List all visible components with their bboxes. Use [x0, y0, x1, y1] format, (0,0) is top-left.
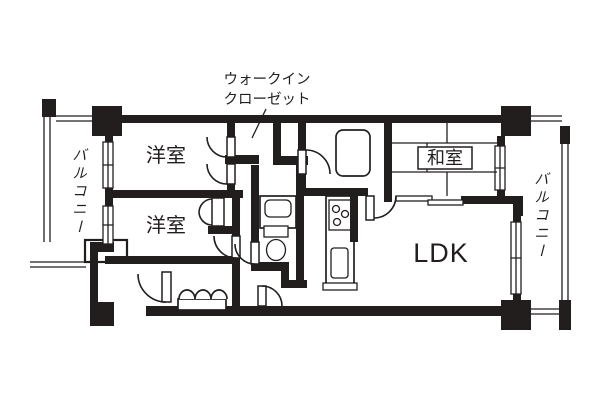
stove-burner-1: [333, 206, 340, 213]
balcony-right-railing: [562, 128, 568, 330]
wall-bath-left-top: [298, 123, 306, 150]
stove-burner-3: [334, 219, 341, 226]
door-room1: [207, 164, 235, 184]
wall-right-4: [513, 294, 521, 302]
balcony-right-railing-cap-top: [560, 126, 570, 144]
pillar-top-right: [501, 106, 531, 136]
balcony-left-top-tie: [56, 116, 92, 121]
wall-hall-1: [227, 123, 235, 137]
wall-left-4: [90, 250, 98, 304]
washroom: [260, 196, 296, 261]
floor-plan-page: 洋室 洋室 和室 LDK ウォークイン クローゼット バルコニー バルコニー: [0, 0, 600, 400]
label-ldk: LDK: [413, 238, 469, 268]
door-toilet: [258, 286, 282, 306]
wall-right-1: [497, 136, 505, 146]
neighbor-railing: [30, 262, 86, 267]
balcony-left-railing: [44, 104, 50, 242]
bathtub: [336, 130, 370, 176]
window-room1-left: [103, 142, 113, 188]
wall-room2-bottom: [105, 256, 232, 264]
door-room2-closet-bifold: [199, 198, 224, 226]
washbasin-bowl: [265, 200, 291, 217]
label-room-japanese: 和室: [427, 148, 463, 168]
wall-washitsu-left: [384, 123, 392, 202]
balcony-right-top-tie: [531, 116, 562, 121]
wall-top: [120, 115, 503, 123]
wall-entrance-hall: [232, 258, 240, 306]
window-room2-left: [103, 206, 113, 244]
toilet-bowl: [267, 240, 286, 261]
toilet-tank: [264, 226, 288, 237]
balcony-left-railing-cap: [42, 99, 56, 117]
wall-washitsu-ldk-stub: [513, 196, 523, 216]
bathroom: [336, 130, 370, 176]
wall-washroom-left: [251, 165, 259, 242]
label-walk-in-closet-line2: クローゼット: [224, 91, 311, 108]
door-washitsu-sliding: [396, 196, 463, 205]
label-room-western-2: 洋室: [146, 214, 186, 237]
balcony-right-bottom-tie: [531, 309, 560, 314]
wall-hall-3: [227, 184, 235, 191]
window-ldk-right: [511, 222, 521, 294]
shoe-closet-folding-doors: [179, 290, 227, 299]
balcony-right-railing-cap-bottom: [559, 300, 571, 330]
kitchen: [323, 196, 358, 290]
shoe-closet-base: [178, 299, 226, 310]
label-walk-in-closet-line1: ウォークイン: [224, 71, 311, 88]
kitchen-sink: [331, 248, 348, 278]
wall-kitchen-divider: [296, 165, 304, 288]
labels: 洋室 洋室 和室 LDK ウォークイン クローゼット バルコニー バルコニー: [69, 71, 548, 268]
wall-left-1: [105, 123, 113, 142]
door-walk-in-closet: [207, 137, 235, 157]
kitchen-counter-base: [323, 283, 357, 290]
label-room-western-1: 洋室: [146, 144, 186, 167]
label-balcony-right: バルコニー: [531, 171, 548, 261]
floor-plan-drawing: 洋室 洋室 和室 LDK ウォークイン クローゼット バルコニー バルコニー: [0, 0, 600, 400]
walk-in-closet-leader-line: [252, 109, 266, 138]
door-entrance-front: [138, 272, 171, 302]
label-balcony-left: バルコニー: [69, 147, 86, 237]
pillar-bottom-left: [90, 302, 114, 326]
door-bathroom: [298, 150, 330, 174]
pillar-bottom-right: [501, 300, 531, 330]
kitchen-wall-stub: [350, 196, 358, 242]
wall-closet2-bottom: [208, 226, 240, 234]
wall-kitchen-top: [296, 188, 368, 196]
window-washitsu-right: [495, 146, 505, 190]
stove-burner-2: [342, 211, 349, 218]
door-room2: [214, 236, 240, 258]
wall-rooms-divider: [105, 190, 243, 198]
entrance: [178, 290, 227, 310]
